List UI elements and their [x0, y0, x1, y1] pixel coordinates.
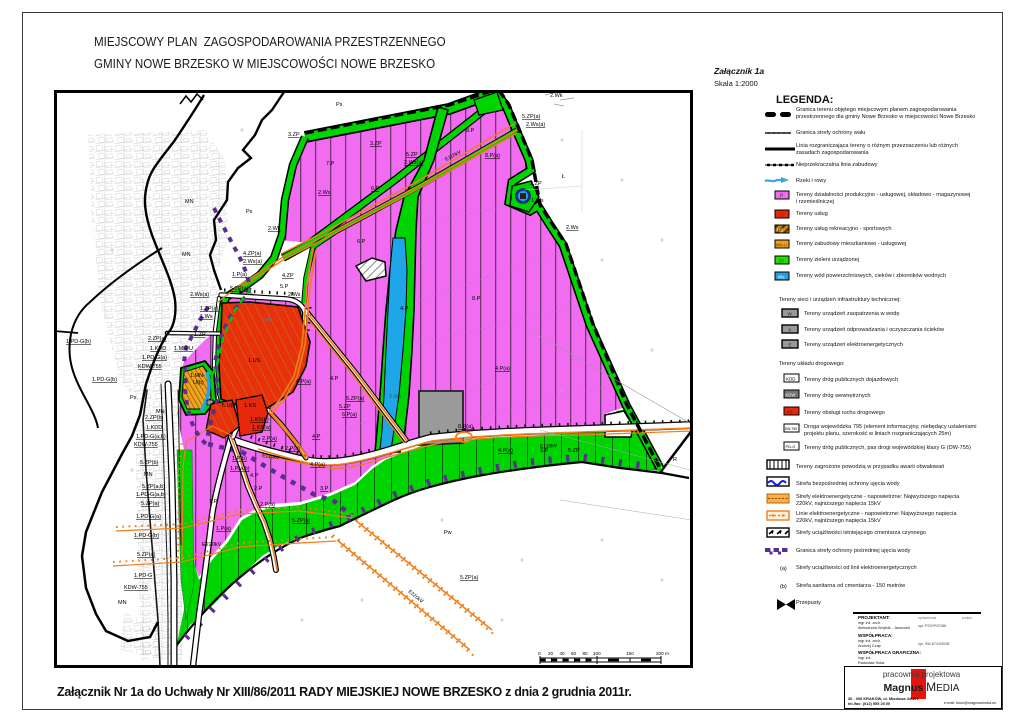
svg-text:ZP: ZP — [779, 259, 785, 264]
svg-text:200 m: 200 m — [656, 651, 669, 656]
svg-text:4.P: 4.P — [312, 434, 321, 440]
svg-text:5.ZP(a): 5.ZP(a) — [137, 552, 156, 558]
svg-text:5.ZP(a): 5.ZP(a) — [522, 114, 541, 120]
svg-text:5.ZP(a): 5.ZP(a) — [292, 518, 311, 524]
svg-text:E110kV: E110kV — [540, 443, 558, 450]
svg-text:MN: MN — [263, 318, 272, 324]
svg-text:3.ZP: 3.ZP — [370, 141, 382, 147]
svg-text:4.P: 4.P — [250, 473, 259, 479]
svg-text:DW-755: DW-755 — [785, 427, 797, 431]
svg-text:6.P(a): 6.P(a) — [342, 412, 357, 418]
svg-text:3.P: 3.P — [320, 486, 329, 492]
svg-text:2.ZP(a): 2.ZP(a) — [148, 336, 167, 342]
svg-text:1.PD-G(a): 1.PD-G(a) — [136, 514, 161, 520]
svg-text:60: 60 — [571, 651, 577, 656]
svg-text:2.P(a): 2.P(a) — [285, 446, 300, 452]
svg-text:1.KS(a): 1.KS(a) — [252, 425, 271, 431]
svg-text:1.MN-: 1.MN- — [190, 373, 205, 379]
svg-text:5.ZP(a): 5.ZP(a) — [230, 286, 249, 292]
svg-text:2.Ws: 2.Ws — [288, 292, 301, 298]
svg-text:4.P(a): 4.P(a) — [296, 379, 311, 385]
svg-text:4.P(a): 4.P(a) — [310, 462, 325, 468]
svg-text:(b): (b) — [780, 584, 787, 590]
svg-text:3.ZP: 3.ZP — [288, 132, 300, 138]
svg-text:R: R — [673, 457, 677, 463]
svg-text:Ps: Ps — [246, 209, 253, 215]
svg-text:MN-U: MN-U — [776, 243, 787, 248]
svg-text:8.P(a): 8.P(a) — [458, 424, 473, 430]
svg-text:2.ZP: 2.ZP — [530, 181, 542, 187]
svg-text:1.PD-G(b): 1.PD-G(b) — [92, 377, 117, 383]
svg-text:2.Ws(a): 2.Ws(a) — [404, 160, 423, 166]
svg-text:KDD: KDD — [786, 377, 796, 382]
svg-text:MN: MN — [182, 252, 191, 258]
svg-text:5.ZP(a,b): 5.ZP(a,b) — [142, 484, 165, 490]
svg-text:Ps: Ps — [130, 395, 137, 401]
svg-text:1.PD-G(a,b): 1.PD-G(a,b) — [136, 434, 166, 440]
svg-text:U: U — [780, 213, 784, 219]
svg-text:5.U(b): 5.U(b) — [222, 403, 237, 409]
svg-text:1.KDD: 1.KDD — [150, 346, 166, 352]
svg-text:US: US — [777, 228, 783, 233]
svg-text:1.MN-U: 1.MN-U — [174, 346, 193, 352]
svg-text:E: E — [789, 343, 792, 348]
svg-text:6.P: 6.P — [371, 186, 380, 192]
svg-text:5.ZP: 5.ZP — [568, 448, 580, 454]
svg-text:(a): (a) — [780, 566, 787, 572]
svg-text:1.PD-G(b): 1.PD-G(b) — [134, 533, 159, 539]
svg-text:KDW: KDW — [786, 393, 796, 398]
svg-text:2.Ws(a): 2.Ws(a) — [526, 122, 545, 128]
svg-text:20: 20 — [548, 651, 554, 656]
svg-text:MN: MN — [118, 600, 127, 606]
svg-text:Ws: Ws — [778, 275, 785, 280]
svg-text:2.P: 2.P — [254, 486, 263, 492]
svg-text:2.Wk: 2.Wk — [550, 93, 563, 99]
svg-text:1.P(a): 1.P(a) — [216, 526, 231, 532]
svg-text:4.P: 4.P — [330, 376, 339, 382]
svg-text:150: 150 — [626, 651, 634, 656]
svg-text:5.ZP(a): 5.ZP(a) — [346, 396, 365, 402]
svg-text:4.ZP: 4.ZP — [282, 273, 294, 279]
svg-text:4.ZP(a): 4.ZP(a) — [243, 251, 262, 257]
svg-text:80: 80 — [583, 651, 589, 656]
svg-text:2.Wk: 2.Wk — [268, 226, 281, 232]
svg-text:2.Ws: 2.Ws — [318, 190, 331, 196]
svg-text:KDW-755: KDW-755 — [138, 364, 162, 370]
svg-text:2.P(a): 2.P(a) — [262, 436, 277, 442]
svg-text:Pw: Pw — [444, 530, 452, 536]
svg-text:4.P(a): 4.P(a) — [495, 366, 510, 372]
svg-text:2.ZP(b): 2.ZP(b) — [145, 415, 164, 421]
svg-text:1.P: 1.P — [209, 499, 218, 505]
svg-text:1.PD-G(a): 1.PD-G(a) — [142, 355, 167, 361]
svg-text:5.ZP(a): 5.ZP(a) — [460, 575, 479, 581]
svg-text:4.P(a): 4.P(a) — [498, 448, 513, 454]
svg-text:1.ZP: 1.ZP — [194, 332, 206, 338]
svg-text:1.KS: 1.KS — [244, 403, 256, 409]
svg-text:1.US: 1.US — [248, 358, 261, 364]
svg-text:1.P(b): 1.P(b) — [232, 456, 247, 462]
svg-text:KDW-755: KDW-755 — [124, 585, 148, 591]
svg-text:KDW-755: KDW-755 — [134, 442, 158, 448]
svg-text:8.P(a): 8.P(a) — [485, 153, 500, 159]
svg-text:1.PD-G(b): 1.PD-G(b) — [66, 339, 91, 345]
svg-text:PD-G: PD-G — [786, 444, 796, 449]
svg-text:2.P(a): 2.P(a) — [260, 502, 275, 508]
svg-text:6.P: 6.P — [357, 239, 366, 245]
svg-text:5.ZP: 5.ZP — [406, 152, 418, 158]
svg-text:5.P: 5.P — [280, 284, 289, 290]
svg-text:100: 100 — [593, 651, 601, 656]
svg-text:MN: MN — [185, 199, 194, 205]
svg-text:1.P(a,b): 1.P(a,b) — [230, 466, 250, 472]
svg-text:Ł: Ł — [562, 174, 565, 180]
svg-text:Ps: Ps — [336, 102, 343, 108]
svg-text:5.ZP: 5.ZP — [339, 404, 351, 410]
svg-text:1.PD-G(a,b): 1.PD-G(a,b) — [136, 492, 166, 498]
svg-text:5.ZP(b): 5.ZP(b) — [140, 460, 159, 466]
svg-text:2.Ws(a): 2.Ws(a) — [243, 259, 262, 265]
svg-text:1.KDD: 1.KDD — [146, 425, 162, 431]
svg-text:1.ZP(a): 1.ZP(a) — [200, 306, 219, 312]
svg-text:1.Ws: 1.Ws — [531, 198, 544, 204]
svg-text:40: 40 — [560, 651, 566, 656]
svg-text:7.P: 7.P — [326, 161, 335, 167]
svg-text:2.Ws: 2.Ws — [389, 394, 402, 400]
svg-text:MN: MN — [144, 472, 153, 478]
svg-text:E220kV: E220kV — [202, 542, 222, 548]
svg-text:K: K — [789, 328, 792, 333]
svg-text:KS: KS — [787, 410, 793, 415]
svg-text:4.P: 4.P — [400, 306, 409, 312]
svg-text:0: 0 — [538, 651, 541, 656]
svg-text:1.PD-G: 1.PD-G — [134, 573, 152, 579]
svg-text:1.P(a): 1.P(a) — [232, 272, 247, 278]
svg-text:5.ZP(a): 5.ZP(a) — [141, 501, 160, 507]
svg-text:U(b): U(b) — [193, 380, 204, 386]
svg-text:8.P: 8.P — [472, 296, 481, 302]
svg-text:2.Ws: 2.Ws — [566, 225, 579, 231]
svg-text:1.KS(b): 1.KS(b) — [250, 417, 269, 423]
svg-text:8.P: 8.P — [466, 128, 475, 134]
svg-text:1.Ws: 1.Ws — [200, 314, 213, 320]
svg-text:2.Ws(a): 2.Ws(a) — [190, 292, 209, 298]
